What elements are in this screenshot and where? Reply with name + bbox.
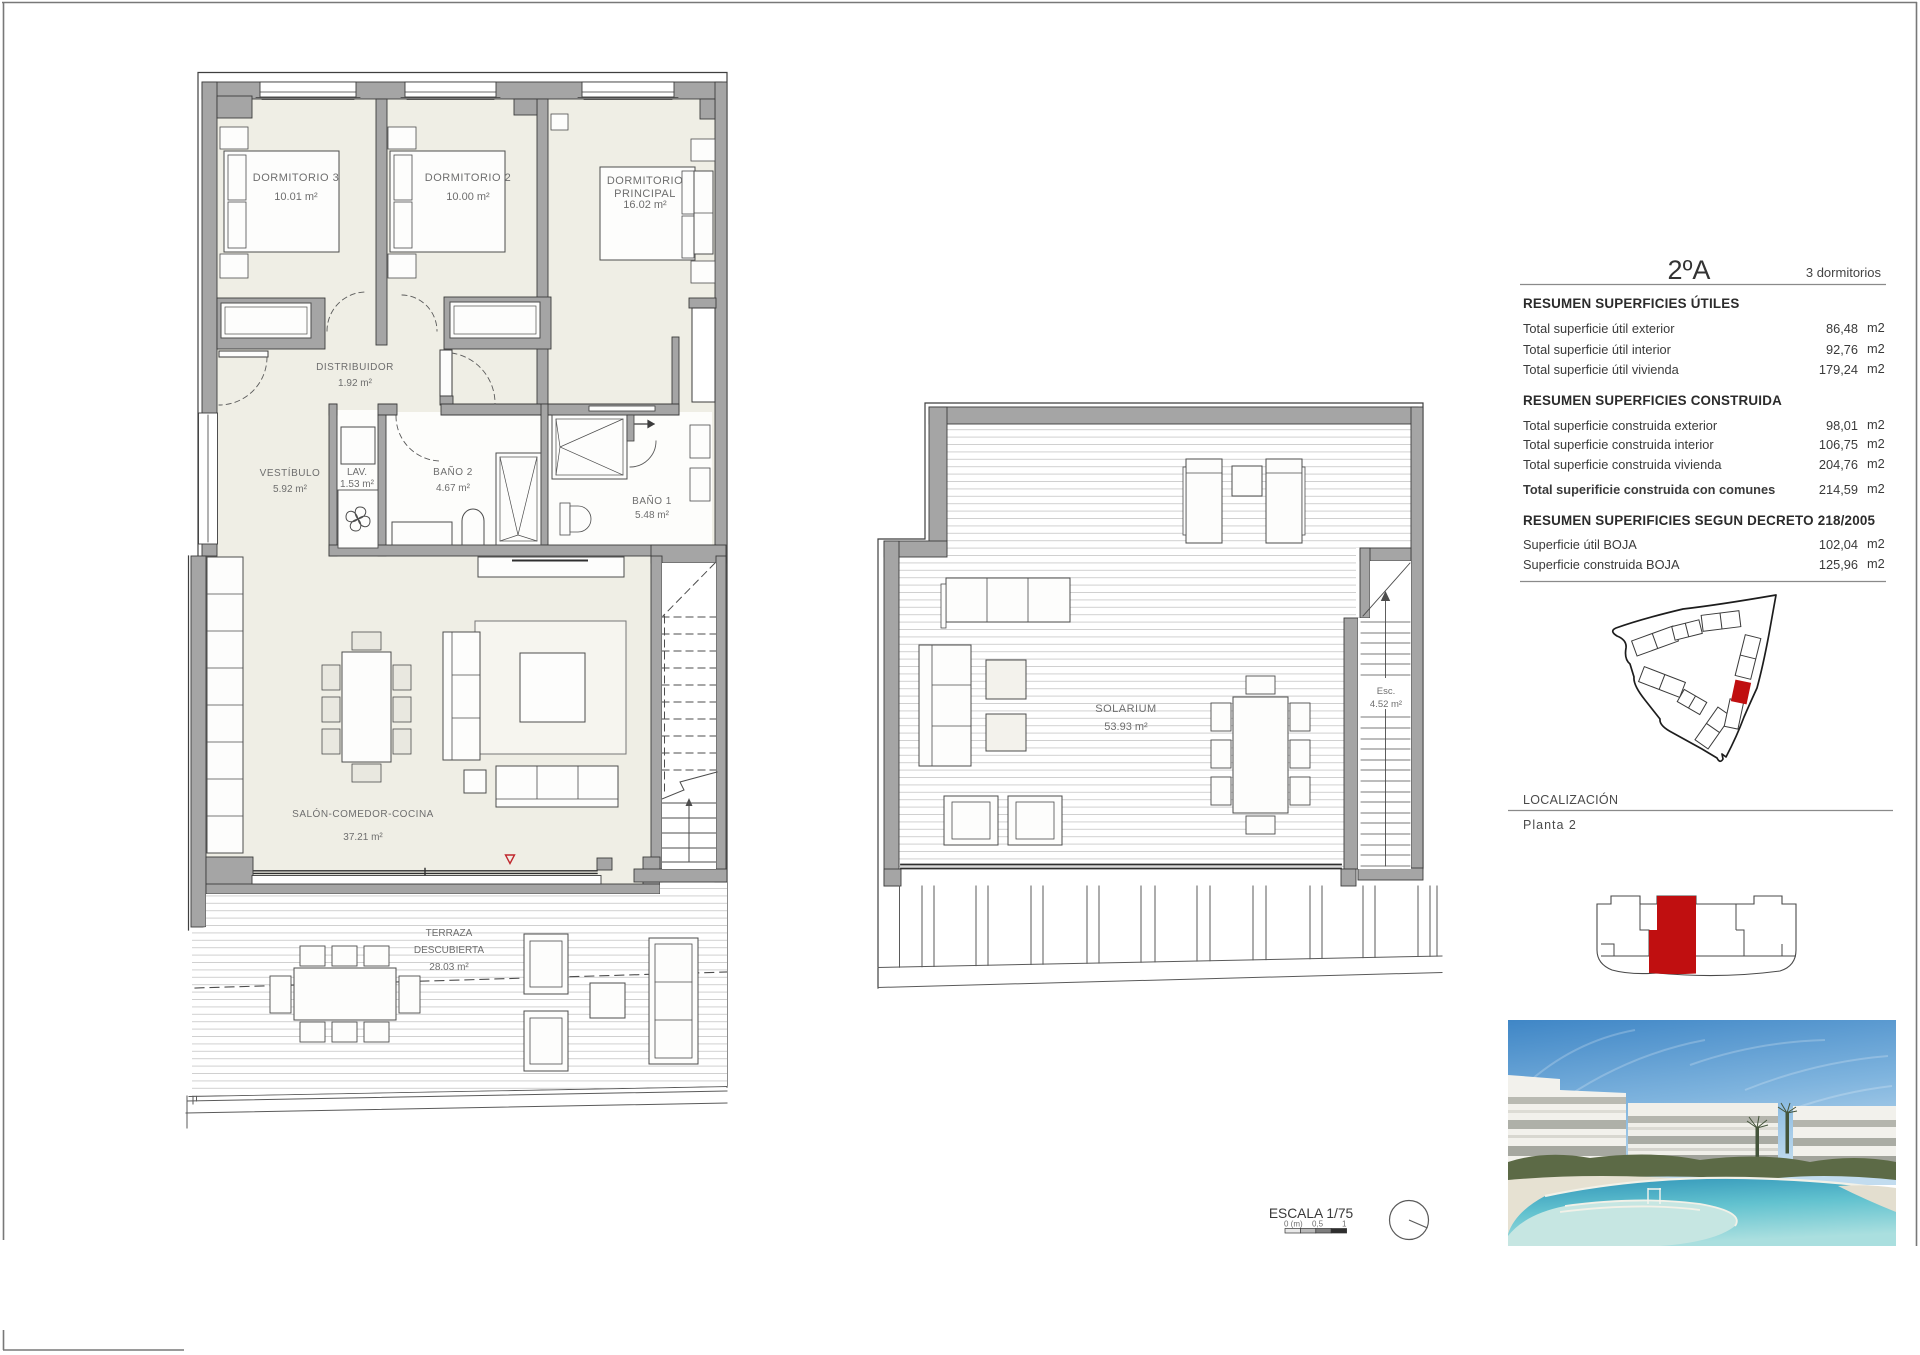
- svg-text:BAÑO 2: BAÑO 2: [433, 465, 473, 478]
- svg-text:102,04: 102,04: [1819, 537, 1858, 552]
- svg-text:4.67 m²: 4.67 m²: [436, 483, 471, 494]
- svg-text:Planta 2: Planta 2: [1523, 818, 1577, 832]
- svg-text:DESCUBIERTA: DESCUBIERTA: [414, 945, 485, 956]
- svg-text:TERRAZA: TERRAZA: [426, 928, 473, 939]
- svg-text:BAÑO 1: BAÑO 1: [632, 494, 672, 507]
- svg-text:37.21 m²: 37.21 m²: [343, 832, 383, 843]
- svg-text:1.53 m²: 1.53 m²: [340, 479, 375, 490]
- svg-text:0,5: 0,5: [1312, 1220, 1324, 1229]
- svg-text:Esc.: Esc.: [1377, 686, 1395, 697]
- svg-text:0 (m): 0 (m): [1284, 1220, 1303, 1229]
- svg-text:m2: m2: [1867, 417, 1885, 432]
- svg-text:LOCALIZACIÓN: LOCALIZACIÓN: [1523, 792, 1618, 807]
- svg-text:DORMITORIO 2: DORMITORIO 2: [425, 172, 511, 184]
- svg-text:RESUMEN SUPERFICIES CONSTRUIDA: RESUMEN SUPERFICIES CONSTRUIDA: [1523, 393, 1782, 408]
- svg-text:2ºA: 2ºA: [1668, 255, 1711, 285]
- svg-text:VESTÍBULO: VESTÍBULO: [260, 466, 321, 479]
- svg-text:SALÓN-COMEDOR-COCINA: SALÓN-COMEDOR-COCINA: [292, 807, 434, 820]
- svg-text:204,76: 204,76: [1819, 457, 1858, 472]
- svg-text:98,01: 98,01: [1826, 418, 1858, 433]
- svg-text:Superficie útil BOJA: Superficie útil BOJA: [1523, 537, 1637, 552]
- svg-text:Total superficie construida ex: Total superficie construida exterior: [1523, 418, 1718, 433]
- svg-text:5.92 m²: 5.92 m²: [273, 484, 308, 495]
- svg-text:16.02 m²: 16.02 m²: [623, 199, 667, 211]
- svg-text:SOLARIUM: SOLARIUM: [1095, 703, 1156, 715]
- svg-text:m2: m2: [1867, 556, 1885, 571]
- svg-text:Total superficie construida in: Total superficie construida interior: [1523, 437, 1714, 452]
- svg-text:RESUMEN SUPERFICIES ÚTILES: RESUMEN SUPERFICIES ÚTILES: [1523, 296, 1740, 311]
- svg-text:m2: m2: [1867, 320, 1885, 335]
- svg-text:m2: m2: [1867, 341, 1885, 356]
- svg-text:Total superficie útil exterior: Total superficie útil exterior: [1523, 321, 1675, 336]
- svg-text:Superficie construida BOJA: Superficie construida BOJA: [1523, 557, 1680, 572]
- svg-text:125,96: 125,96: [1819, 557, 1858, 572]
- svg-text:10.00 m²: 10.00 m²: [446, 191, 490, 203]
- svg-text:53.93 m²: 53.93 m²: [1104, 721, 1148, 733]
- svg-text:3 dormitorios: 3 dormitorios: [1806, 265, 1882, 280]
- svg-text:214,59: 214,59: [1819, 482, 1858, 497]
- svg-text:5.48 m²: 5.48 m²: [635, 510, 670, 521]
- svg-text:m2: m2: [1867, 456, 1885, 471]
- svg-text:m2: m2: [1867, 536, 1885, 551]
- svg-text:Total superficie útil interior: Total superficie útil interior: [1523, 342, 1672, 357]
- svg-text:Total superificie construida c: Total superificie construida con comunes: [1523, 482, 1775, 497]
- svg-text:86,48: 86,48: [1826, 321, 1858, 336]
- svg-text:m2: m2: [1867, 361, 1885, 376]
- svg-text:LAV.: LAV.: [347, 467, 367, 478]
- svg-text:1: 1: [1342, 1220, 1347, 1229]
- svg-text:106,75: 106,75: [1819, 437, 1858, 452]
- svg-text:28.03 m²: 28.03 m²: [429, 962, 469, 973]
- svg-text:RESUMEN SUPERIFICIES SEGUN DEC: RESUMEN SUPERIFICIES SEGUN DECRETO 218/2…: [1523, 513, 1875, 528]
- svg-text:DISTRIBUIDOR: DISTRIBUIDOR: [316, 362, 394, 373]
- svg-text:DORMITORIO 3: DORMITORIO 3: [253, 172, 339, 184]
- svg-text:4.52 m²: 4.52 m²: [1370, 699, 1402, 710]
- svg-text:1.92 m²: 1.92 m²: [338, 378, 373, 389]
- svg-text:Total superficie útil vivienda: Total superficie útil vivienda: [1523, 362, 1680, 377]
- svg-text:Total superficie construida vi: Total superficie construida vivienda: [1523, 457, 1722, 472]
- svg-text:DORMITORIO: DORMITORIO: [607, 175, 683, 187]
- svg-text:10.01 m²: 10.01 m²: [274, 191, 318, 203]
- svg-text:92,76: 92,76: [1826, 342, 1858, 357]
- svg-text:m2: m2: [1867, 481, 1885, 496]
- svg-text:179,24: 179,24: [1819, 362, 1858, 377]
- svg-text:m2: m2: [1867, 436, 1885, 451]
